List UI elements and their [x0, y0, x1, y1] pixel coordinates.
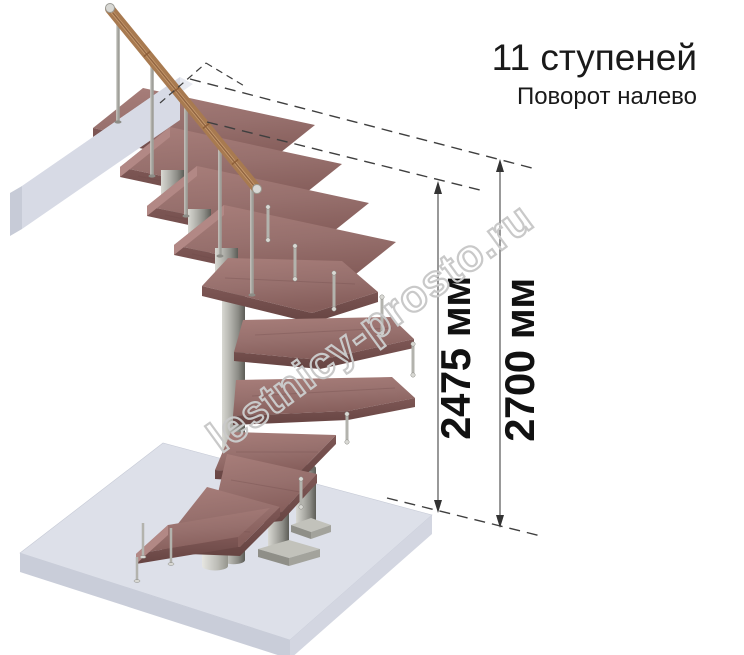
landing-end-face	[10, 186, 22, 236]
page-title: 11 ступеней	[492, 37, 697, 78]
page-subtitle: Поворот налево	[517, 83, 697, 110]
handrail-end-cap	[253, 185, 262, 194]
arrow-down-icon	[496, 515, 504, 528]
hidden-edge	[206, 63, 246, 87]
arrow-up-icon	[496, 159, 504, 172]
handrail-end-cap	[106, 4, 115, 13]
staircase-diagram-page: 2475 мм 2700 мм lestnicy-prosto.ru 11 ст…	[0, 0, 744, 655]
arrow-up-icon	[434, 181, 442, 194]
header-block: 11 ступеней Поворот налево	[492, 37, 697, 110]
stair-diagram-svg: 2475 мм 2700 мм lestnicy-prosto.ru 11 ст…	[0, 0, 744, 655]
dimension-label-outer: 2700 мм	[496, 278, 543, 442]
